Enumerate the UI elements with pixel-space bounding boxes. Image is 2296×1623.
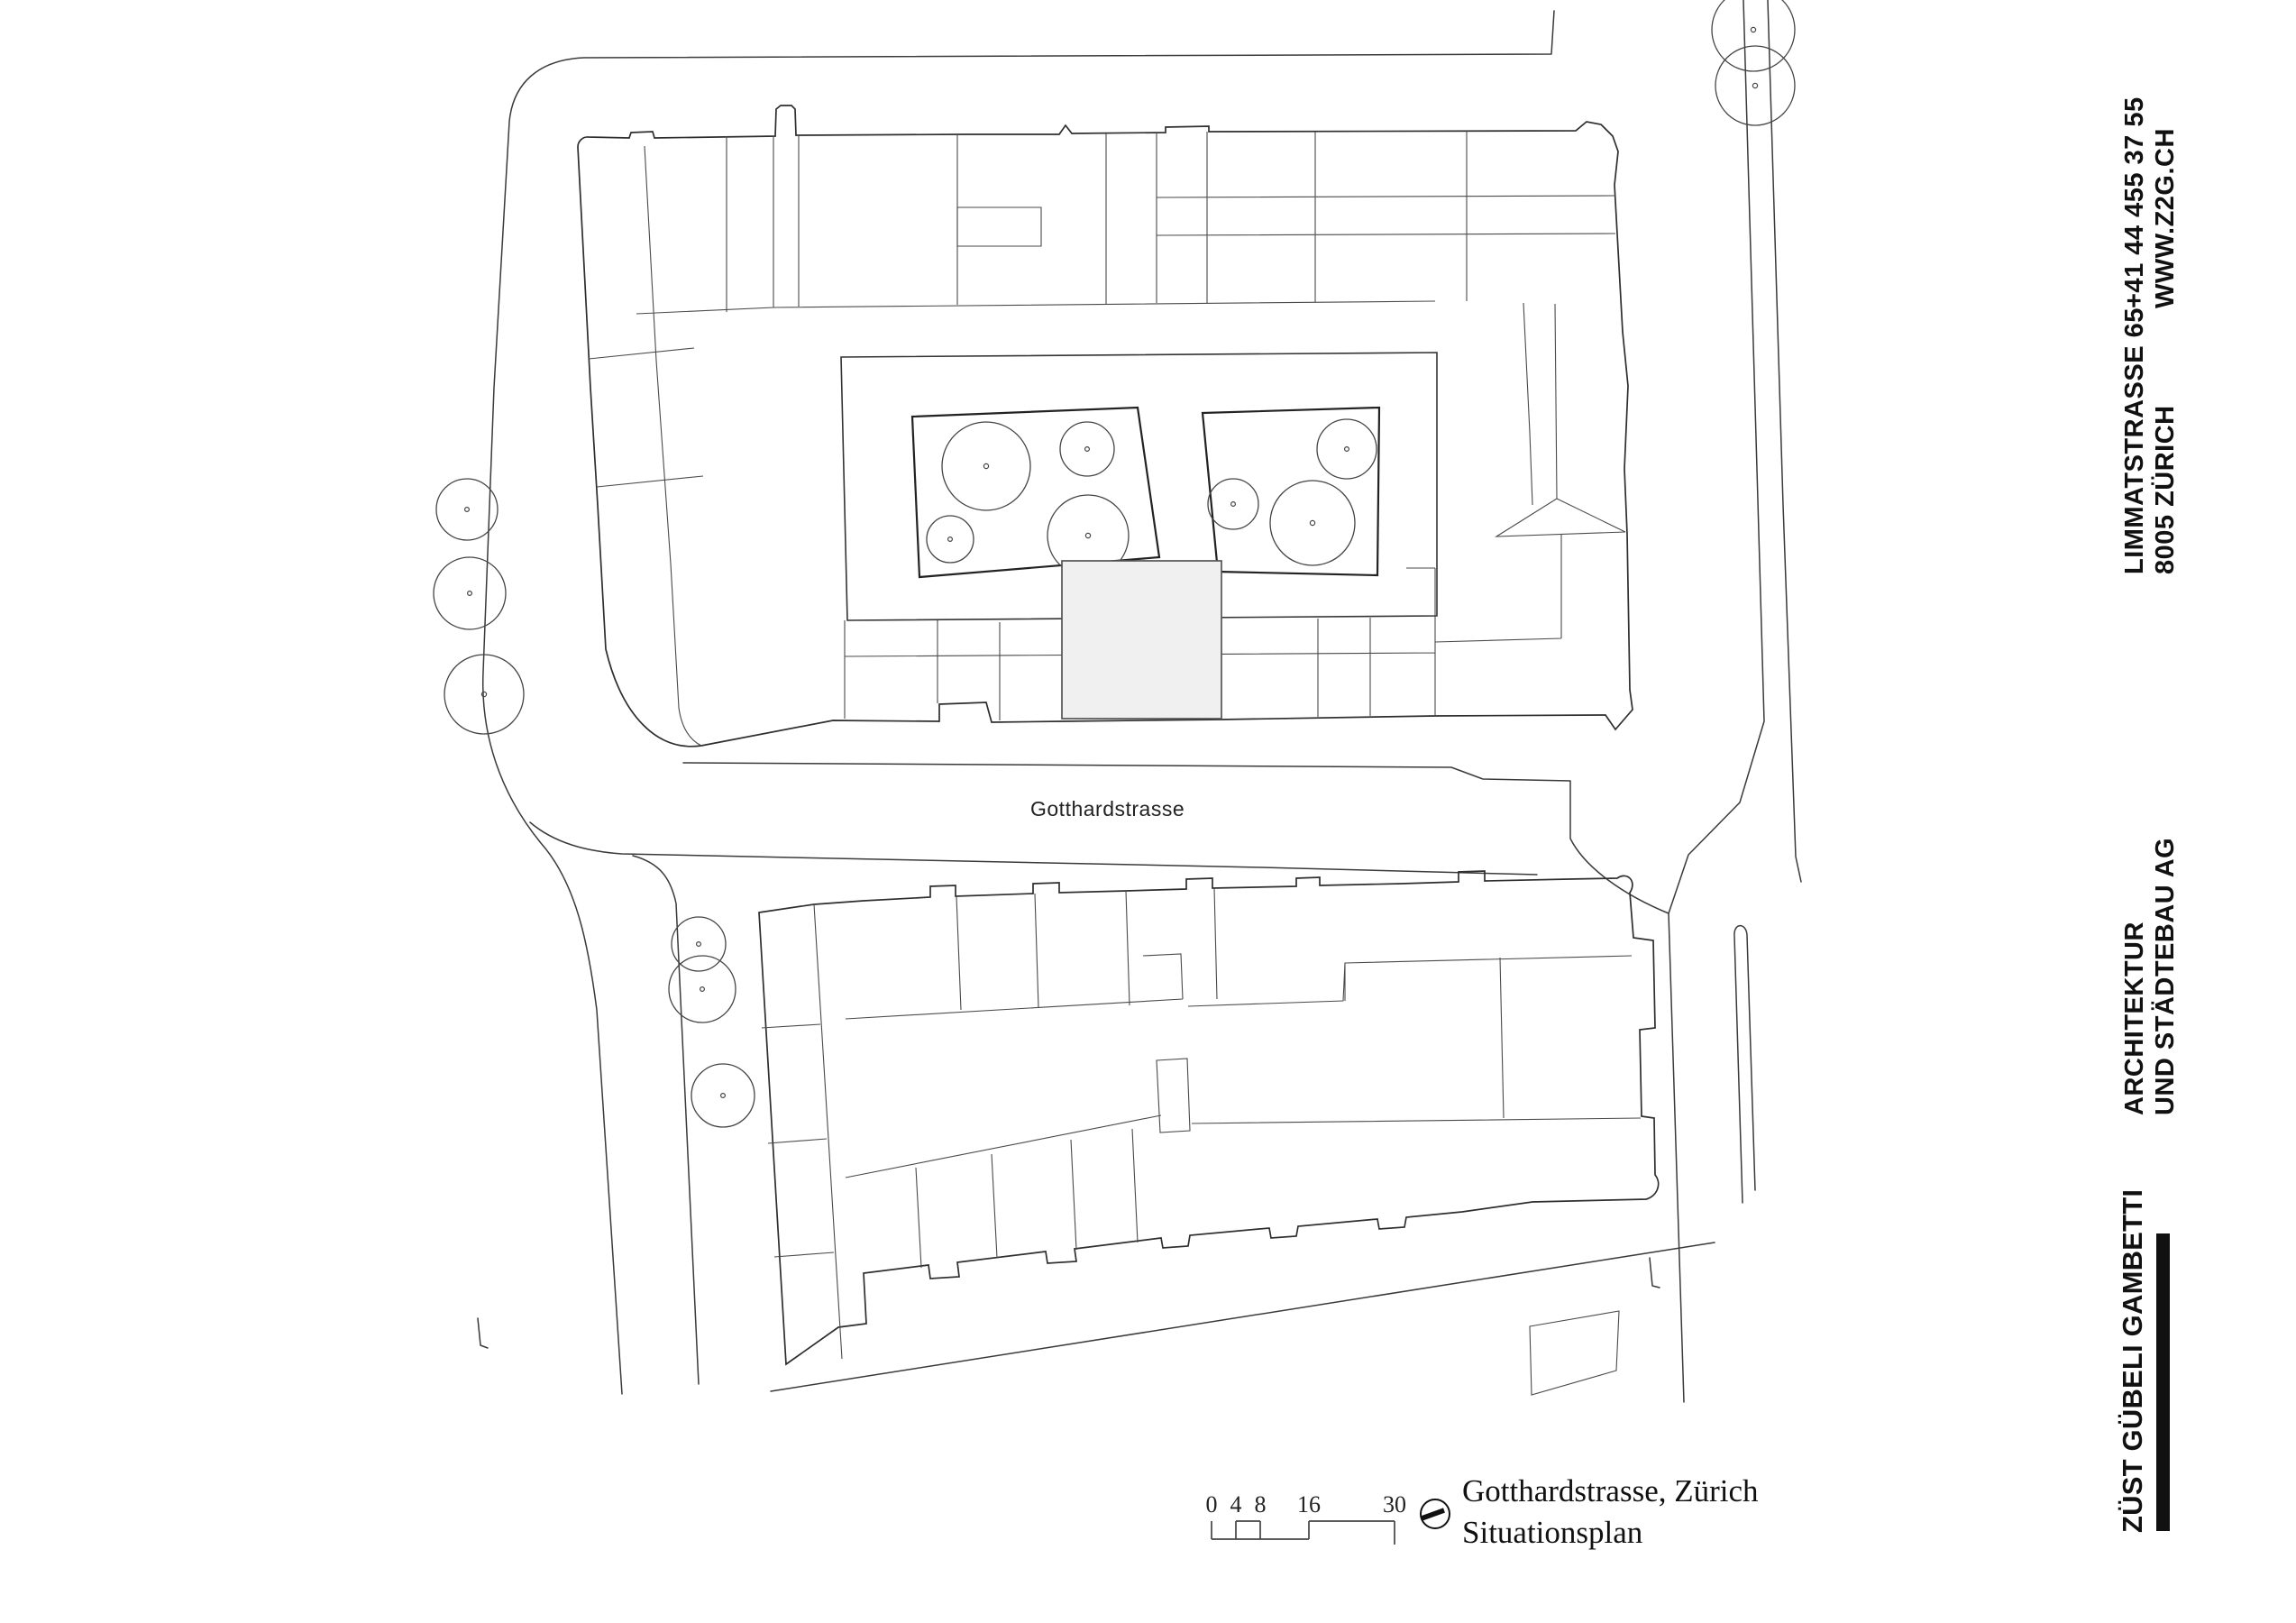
tree-icon: [691, 1064, 755, 1127]
tree-icon: [434, 557, 506, 629]
firm-address-line-2: 8005 ZÜRICH: [2151, 405, 2181, 574]
planting-bed-left: [912, 408, 1159, 577]
firm-phone: +41 44 455 37 55: [2120, 96, 2150, 308]
street-median-island: [1734, 926, 1755, 1203]
firm-address-line-1: LIMMATSTRASSE 65: [2120, 307, 2150, 574]
tree-icon: [1060, 422, 1114, 476]
scale-bar-steps: [1212, 1521, 1395, 1545]
upper-block: [578, 105, 1633, 747]
lower-block-outline: [759, 871, 1659, 1364]
tree-icon: [672, 917, 726, 971]
roof-triangle: [1496, 499, 1625, 536]
firm-wordmark: ZÜST GÜBELI GAMBETTI: [2117, 1189, 2149, 1533]
title-line-2: Situationsplan: [1462, 1515, 1642, 1551]
tree-icon: [927, 516, 974, 563]
lower-block-party-walls: [762, 888, 1217, 1268]
scale-tick-label: 8: [1255, 1492, 1267, 1518]
planting-bed-right: [1203, 408, 1379, 575]
tree-icon: [444, 655, 524, 734]
firm-discipline-line-1: ARCHITEKTUR: [2120, 922, 2150, 1115]
firm-website: WWW.Z2G.CH: [2151, 128, 2181, 308]
north-arrow-icon: [1421, 1499, 1450, 1528]
lower-block-inner-facades: [814, 904, 1641, 1359]
fragment-northeast-tick: [1650, 1258, 1660, 1288]
south-strip: [771, 1242, 1715, 1395]
lower-block: [759, 871, 1659, 1364]
tree-icon: [1270, 481, 1355, 565]
lower-block-court-annex: [1157, 1059, 1190, 1132]
tree-icon: [942, 422, 1030, 510]
south-strip-building: [1530, 1311, 1619, 1395]
scale-bar: [1212, 1521, 1395, 1545]
scale-tick-label: 4: [1230, 1492, 1242, 1518]
street-right-west-edge: [1669, 0, 1764, 1402]
scale-tick-label: 30: [1383, 1492, 1406, 1518]
firm-discipline-line-2: UND STÄDTEBAU AG: [2151, 838, 2181, 1115]
new-building-highlight: [1062, 561, 1221, 719]
tree-icon: [1208, 479, 1258, 529]
tree-icon: [1715, 46, 1795, 125]
site-plan-sheet: Gotthardstrasse 0 4 8 16 30 Gotthardstra…: [0, 0, 2296, 1623]
scale-tick-label: 16: [1297, 1492, 1321, 1518]
street-gotthardstrasse-south-edge: [530, 822, 1537, 875]
tree-icon: [1317, 419, 1377, 479]
fragment-west-tick: [478, 1318, 488, 1348]
street-label: Gotthardstrasse: [1030, 797, 1185, 821]
upper-block-annex: [957, 207, 1041, 246]
street-gotthardstrasse-north-edge: [683, 763, 1669, 913]
street-lower-left-east-edge: [633, 856, 699, 1384]
title-line-1: Gotthardstrasse, Zürich: [1462, 1473, 1759, 1509]
tree-icon: [669, 956, 736, 1022]
scale-tick-label: 0: [1206, 1492, 1218, 1518]
street-right-east-edge: [1768, 0, 1801, 882]
tree-icon: [436, 479, 498, 540]
south-street-edge: [771, 1242, 1715, 1391]
street-top-and-left-edge: [483, 11, 1554, 1394]
firm-logo-bar: [2156, 1233, 2170, 1531]
